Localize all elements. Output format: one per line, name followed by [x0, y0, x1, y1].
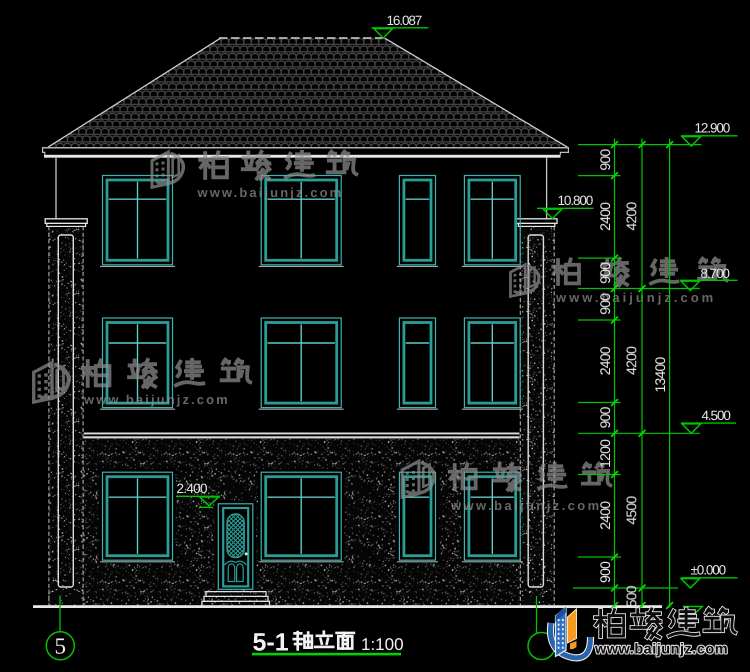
svg-text:2.400: 2.400	[177, 481, 207, 496]
svg-text:5-1: 5-1	[253, 629, 289, 657]
svg-text:12.900: 12.900	[695, 121, 730, 136]
svg-text:www.baijunjz.com: www.baijunjz.com	[594, 642, 728, 658]
svg-text:900: 900	[597, 262, 613, 284]
svg-text:1200: 1200	[597, 439, 613, 468]
svg-text:5: 5	[55, 634, 67, 659]
svg-text:900: 900	[597, 561, 613, 583]
svg-text:900: 900	[597, 149, 613, 171]
svg-text:2400: 2400	[597, 202, 613, 231]
svg-text:4200: 4200	[623, 346, 639, 375]
svg-text:8.700: 8.700	[701, 266, 730, 281]
svg-text:10.800: 10.800	[558, 193, 593, 208]
svg-text:500: 500	[623, 585, 639, 607]
svg-text:www.baijunjz.com: www.baijunjz.com	[83, 392, 230, 407]
svg-text:www.baijunjz.com: www.baijunjz.com	[197, 185, 344, 200]
svg-text:900: 900	[597, 293, 613, 315]
svg-text:13400: 13400	[652, 357, 668, 393]
svg-text:4200: 4200	[623, 202, 639, 231]
svg-text:4500: 4500	[623, 496, 639, 525]
svg-text:16.087: 16.087	[387, 13, 422, 28]
svg-text:900: 900	[597, 406, 613, 428]
svg-text:www.baijunjz.com: www.baijunjz.com	[450, 498, 602, 513]
svg-text:www.baijunjz.com: www.baijunjz.com	[555, 290, 716, 305]
svg-text:4.500: 4.500	[702, 408, 731, 423]
svg-text:2400: 2400	[597, 501, 613, 530]
svg-text:±0.000: ±0.000	[691, 563, 726, 578]
svg-text:2400: 2400	[597, 346, 613, 375]
svg-text:1:100: 1:100	[361, 635, 404, 654]
